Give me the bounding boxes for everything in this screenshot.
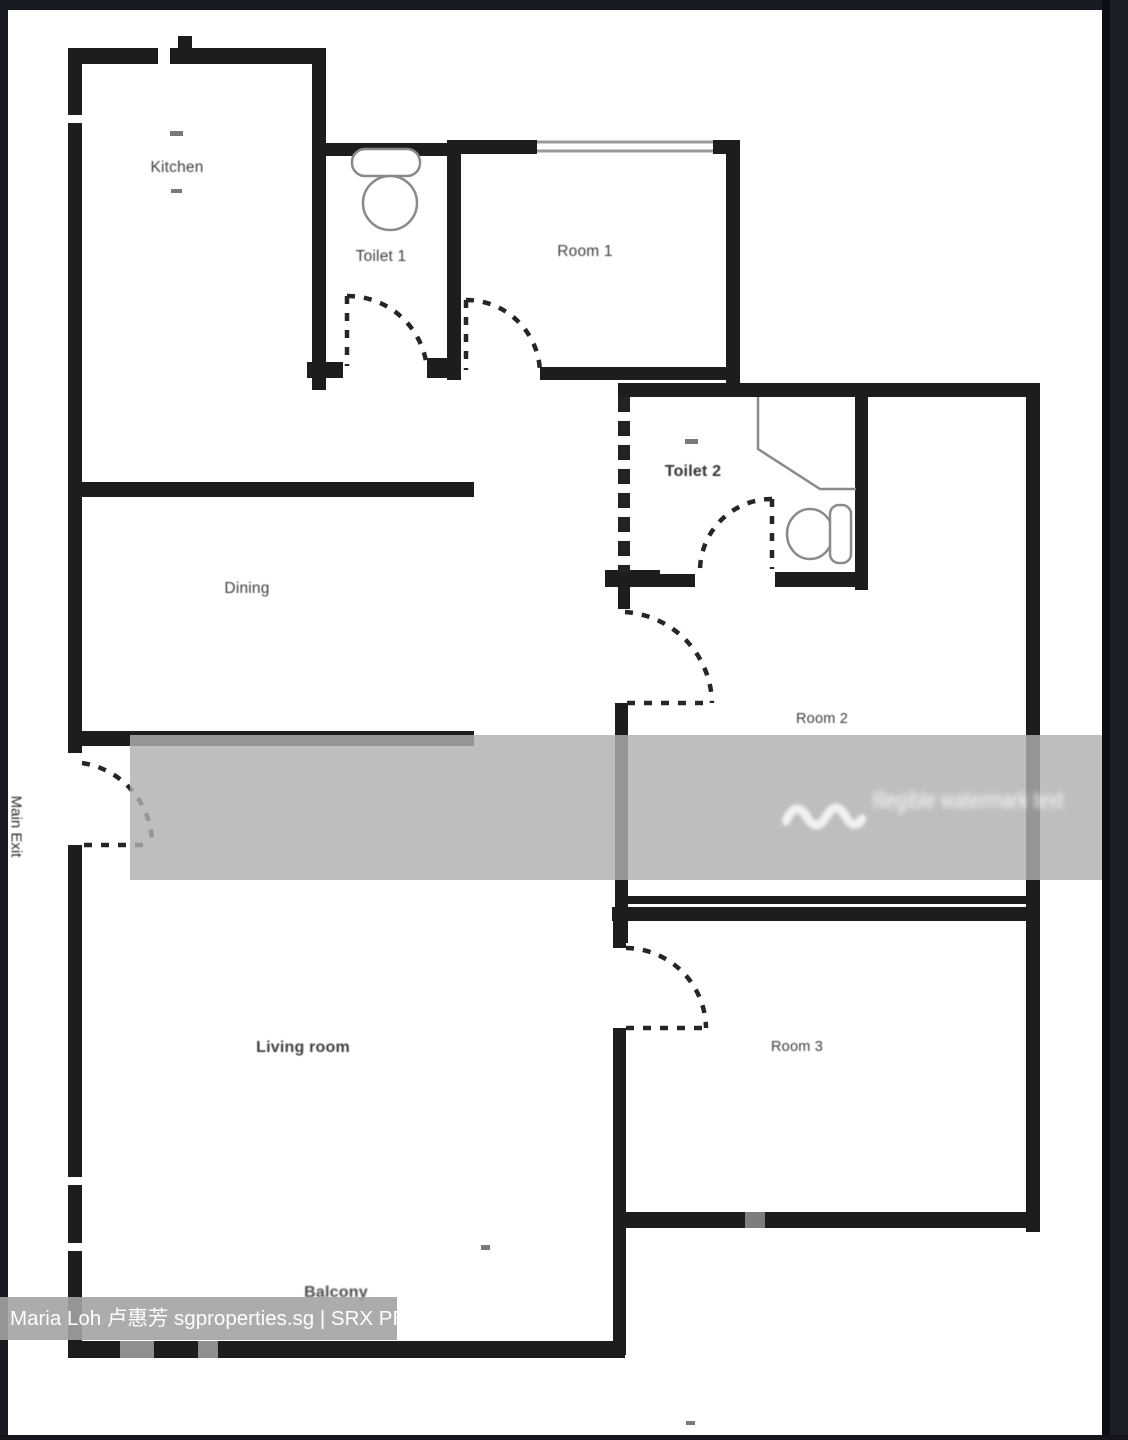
below-plan-dot <box>686 1421 695 1425</box>
room3-bottom-wall <box>613 1212 1040 1228</box>
room2-bottom-wall <box>612 907 1040 921</box>
kitchen-tick-upper <box>170 131 183 136</box>
kitchen-top-wall-tick <box>178 36 192 50</box>
kitchen-right-wall <box>312 48 326 390</box>
left-wall-notch-1 <box>68 115 82 123</box>
living-room-dot <box>481 1245 490 1250</box>
toilet2-label: Toilet 2 <box>665 463 721 481</box>
left-outer-wall-upper <box>68 48 82 753</box>
room1-label: Room 1 <box>557 243 612 261</box>
room2-door-arc <box>625 612 712 703</box>
watermark-band: Illegible watermark text <box>130 735 1102 880</box>
dining-label: Dining <box>224 580 269 598</box>
floor-plan-page: { "image_type": "apartment-floor-plan", … <box>0 0 1128 1440</box>
toilet2-door-arc <box>700 499 772 571</box>
room2-bottom-wall-thin <box>615 896 1040 904</box>
room3-bottom-wall-light-seg <box>745 1212 765 1228</box>
toilet2-bottom-wall-right <box>775 572 859 587</box>
room3-door-arc <box>626 948 706 1028</box>
toilet1-room1-divider-wall <box>447 140 461 380</box>
agent-caption: Maria Loh 卢惠芳 sgproperties.sg | SRX PROP… <box>0 1297 397 1340</box>
walls <box>68 36 1040 1358</box>
toilet1-sink <box>352 149 420 176</box>
toilet1-bottom-wall-right <box>427 358 461 378</box>
balcony-window-1 <box>120 1341 154 1358</box>
kitchen-tick-lower <box>171 189 182 193</box>
room3-label: Room 3 <box>771 1039 823 1055</box>
toilet2-bottom-wall-thick <box>605 570 660 587</box>
toilet2-shower-screen <box>758 397 856 489</box>
left-wall-notch-2 <box>68 1177 82 1185</box>
left-wall-notch-3 <box>68 1243 82 1251</box>
toilet2-bottom-wall-left <box>658 574 695 587</box>
main-exit-label: Main Exit <box>8 781 25 873</box>
balcony-window-2 <box>198 1341 218 1358</box>
room1-door-arc <box>466 300 540 372</box>
left-outer-wall-lower <box>68 845 82 1355</box>
fixtures <box>352 149 856 563</box>
toilet2-right-wall <box>855 393 868 590</box>
room3-left-wall-upper <box>613 921 626 948</box>
toilet2-tick <box>685 439 698 444</box>
room1-right-wall <box>726 140 740 393</box>
kitchen-top-wall <box>68 48 320 64</box>
toilet1-bottom-wall-left <box>307 362 343 378</box>
window-segments <box>68 48 765 1358</box>
kitchen-top-wall-gap <box>158 48 170 64</box>
toilet1-label: Toilet 1 <box>356 248 407 266</box>
toilet2-bowl <box>787 509 833 559</box>
room2-label: Room 2 <box>796 711 848 727</box>
watermark-text: Illegible watermark text <box>872 787 1063 815</box>
room3-left-wall-lower <box>613 1028 626 1355</box>
floor-plan-drawing <box>0 0 1128 1440</box>
double-wave-icon <box>782 787 866 839</box>
room1-top-wall-left <box>461 140 537 154</box>
living-room-label: Living room <box>256 1039 350 1057</box>
dining-top-wall <box>68 482 474 497</box>
room2-top-wall <box>618 383 1040 397</box>
toilet2-cistern <box>830 505 851 563</box>
toilet1-bowl <box>363 176 417 230</box>
toilet1-door-arc <box>347 296 427 368</box>
kitchen-label: Kitchen <box>150 159 203 177</box>
room1-bottom-wall <box>540 367 726 380</box>
